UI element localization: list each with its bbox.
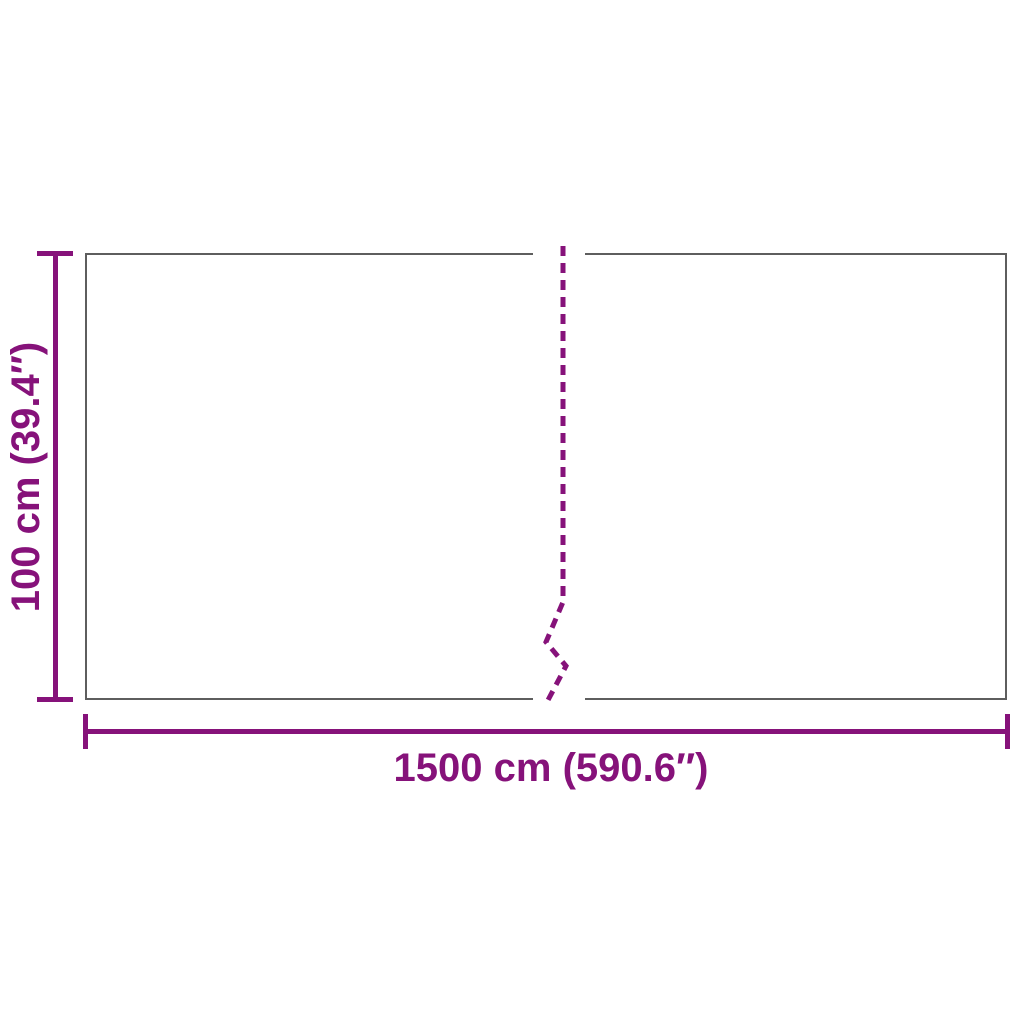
width-dimension-cap-right [1005, 714, 1010, 749]
panel-border-gap-top [533, 250, 585, 258]
product-dimension-diagram: 100 cm (39.4″) 1500 cm (590.6″) [0, 0, 1024, 1024]
height-dimension-cap-top [37, 251, 73, 256]
width-dimension-cap-left [83, 714, 88, 749]
width-dimension-line [85, 729, 1008, 734]
height-dimension-label: 100 cm (39.4″) [6, 342, 46, 612]
height-dimension-cap-bottom [37, 697, 73, 702]
height-dimension-line [53, 253, 58, 700]
panel-border-gap-bottom [533, 696, 585, 704]
panel-outline [85, 253, 1007, 700]
width-dimension-label: 1500 cm (590.6″) [394, 748, 709, 788]
